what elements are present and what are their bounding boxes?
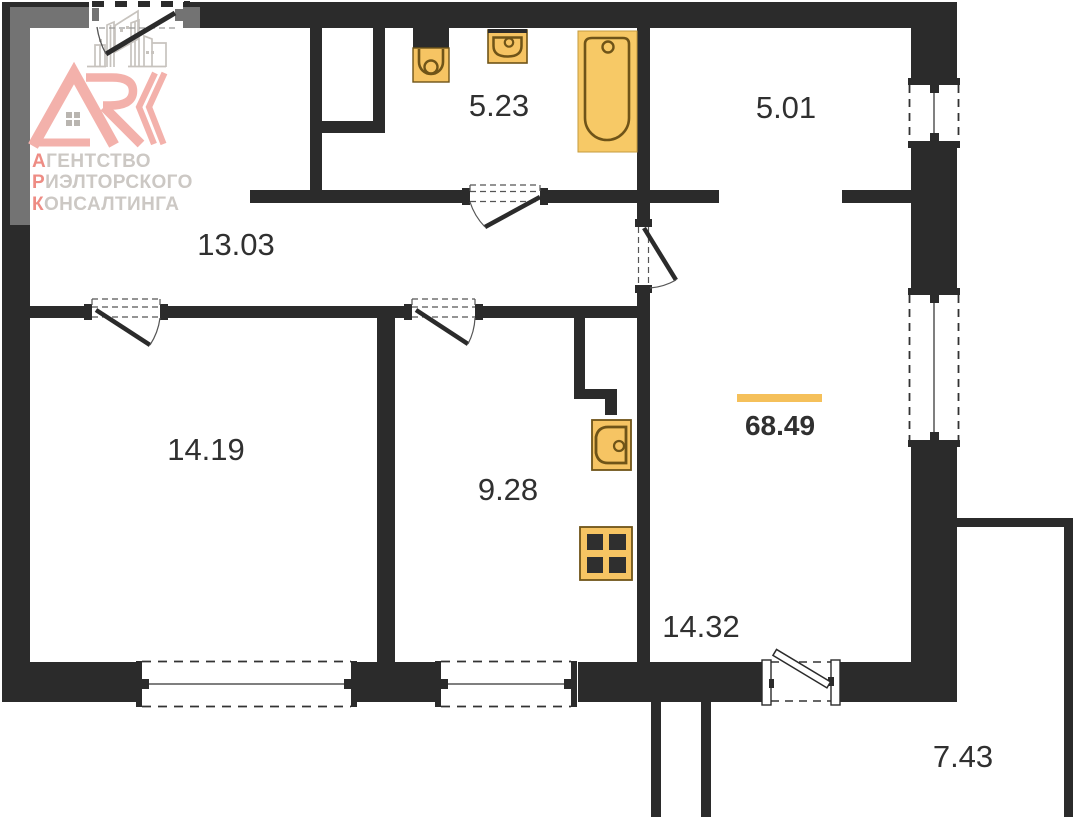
svg-text:68.49: 68.49: [745, 410, 815, 441]
svg-text:РИЭЛТОРСКОГО: РИЭЛТОРСКОГО: [32, 172, 193, 193]
svg-text:9.28: 9.28: [478, 472, 538, 507]
svg-text:13.03: 13.03: [197, 227, 275, 262]
svg-text:АГЕНТСТВО: АГЕНТСТВО: [32, 151, 151, 172]
svg-text:14.32: 14.32: [662, 609, 740, 644]
svg-text:5.01: 5.01: [756, 90, 816, 125]
svg-text:КОНСАЛТИНГА: КОНСАЛТИНГА: [32, 194, 179, 215]
svg-text:7.43: 7.43: [933, 739, 993, 774]
svg-text:5.23: 5.23: [469, 88, 529, 123]
svg-text:14.19: 14.19: [167, 432, 245, 467]
